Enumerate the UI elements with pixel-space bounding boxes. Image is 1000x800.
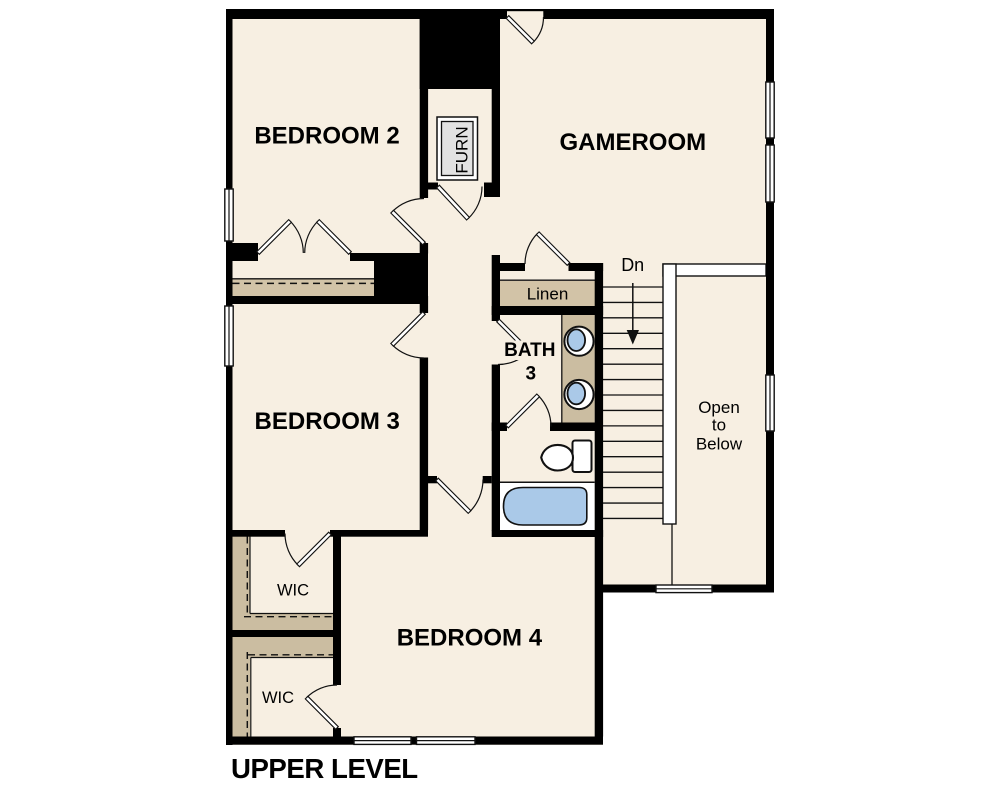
svg-text:Linen: Linen (527, 285, 569, 304)
svg-text:UPPER LEVEL: UPPER LEVEL (231, 753, 418, 784)
svg-text:WIC: WIC (262, 689, 294, 707)
svg-text:3: 3 (526, 364, 537, 385)
svg-text:BEDROOM 2: BEDROOM 2 (254, 122, 399, 149)
svg-text:BEDROOM 3: BEDROOM 3 (255, 408, 400, 435)
svg-text:Open: Open (698, 398, 740, 417)
svg-text:FURN: FURN (453, 126, 472, 173)
svg-text:GAMEROOM: GAMEROOM (559, 129, 706, 156)
svg-text:Dn: Dn (621, 255, 644, 275)
svg-text:BATH: BATH (504, 340, 555, 361)
svg-text:to: to (712, 415, 726, 434)
svg-text:Below: Below (696, 435, 743, 454)
svg-text:WIC: WIC (277, 581, 309, 599)
svg-text:BEDROOM 4: BEDROOM 4 (397, 625, 543, 652)
